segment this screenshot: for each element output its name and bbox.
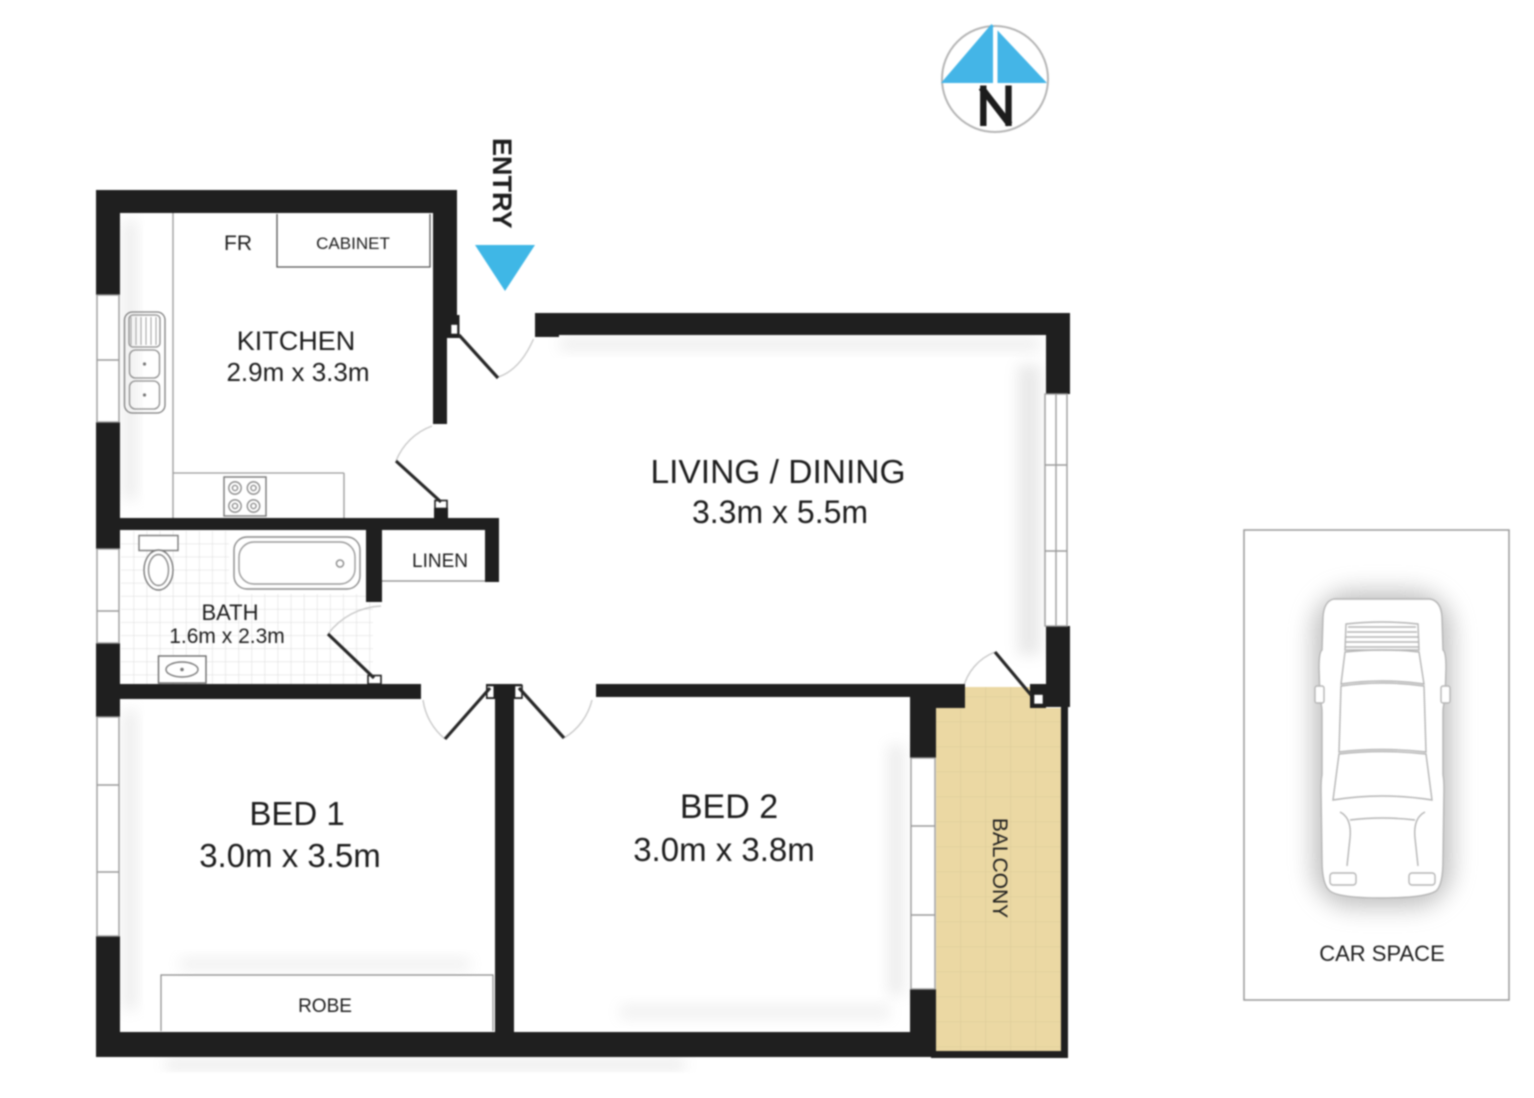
svg-text:LINEN: LINEN bbox=[412, 551, 468, 572]
svg-text:3.3m x 5.5m: 3.3m x 5.5m bbox=[692, 494, 868, 530]
svg-text:BATH: BATH bbox=[201, 600, 258, 625]
svg-text:BED 2: BED 2 bbox=[680, 788, 778, 826]
svg-text:LIVING / DINING: LIVING / DINING bbox=[650, 454, 905, 491]
svg-text:BED 1: BED 1 bbox=[249, 795, 344, 832]
svg-text:CAR SPACE: CAR SPACE bbox=[1319, 941, 1445, 966]
svg-text:1.6m x 2.3m: 1.6m x 2.3m bbox=[169, 625, 285, 648]
svg-text:CABINET: CABINET bbox=[316, 234, 390, 253]
svg-text:BALCONY: BALCONY bbox=[988, 818, 1011, 918]
svg-text:KITCHEN: KITCHEN bbox=[237, 326, 356, 356]
svg-text:3.0m x 3.5m: 3.0m x 3.5m bbox=[199, 837, 381, 874]
svg-text:ROBE: ROBE bbox=[298, 996, 352, 1017]
svg-text:2.9m x 3.3m: 2.9m x 3.3m bbox=[226, 357, 369, 387]
svg-text:ENTRY: ENTRY bbox=[487, 138, 517, 229]
svg-text:FR: FR bbox=[224, 232, 252, 255]
svg-text:3.0m x 3.8m: 3.0m x 3.8m bbox=[633, 831, 815, 868]
